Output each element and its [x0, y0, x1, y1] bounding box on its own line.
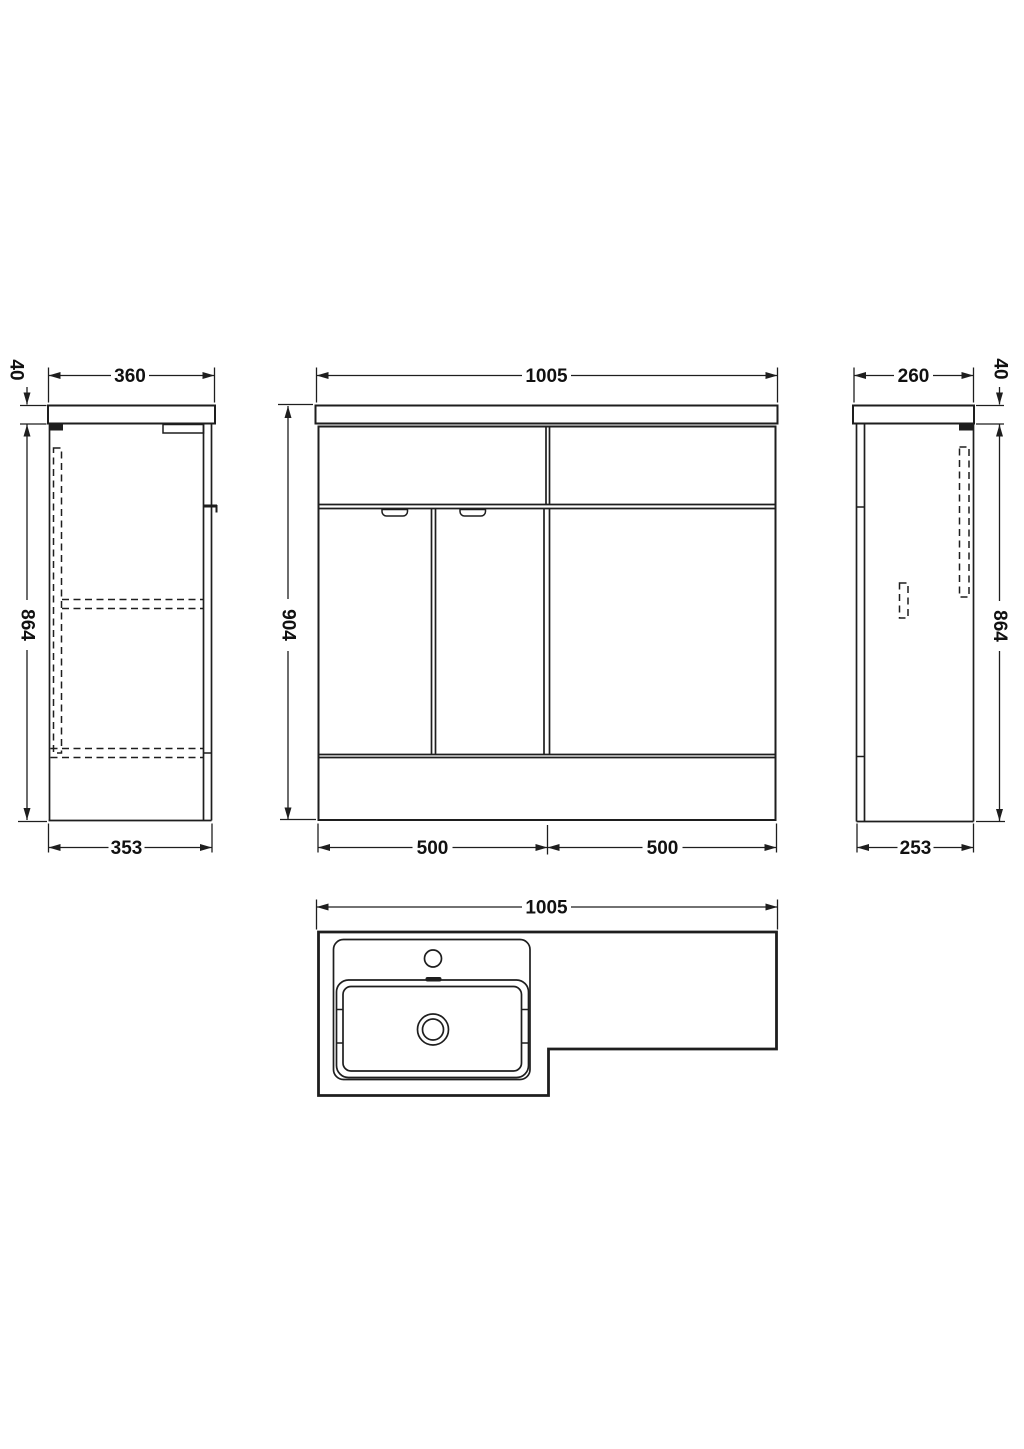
- cabinet-body: [319, 427, 776, 821]
- countertop-profile-right: [853, 406, 974, 424]
- dim-label: 40: [6, 359, 27, 380]
- dim-label: 360: [114, 366, 146, 387]
- fixing-clip: [50, 425, 63, 431]
- dim-label: 864: [989, 610, 1010, 642]
- dim-label: 253: [900, 838, 932, 859]
- technical-drawing: 360 40 864 353: [0, 0, 1024, 1449]
- plan-view: 1005: [317, 897, 778, 1096]
- countertop-profile-left: [48, 406, 215, 424]
- dim-countertop-thickness-left: 40: [6, 359, 47, 424]
- dim-label: 1005: [525, 366, 568, 387]
- hidden-fixing-block: [900, 583, 909, 618]
- dim-label: 353: [111, 838, 143, 859]
- dim-cabinet-height-left: 864: [16, 425, 47, 822]
- dim-label: 500: [647, 838, 679, 859]
- dim-label: 904: [278, 609, 299, 641]
- dim-cabinet-height-right: 864: [976, 425, 1011, 822]
- dim-label: 40: [990, 358, 1011, 379]
- dim-label: 1005: [525, 898, 568, 919]
- dim-countertop-depth-left: 360: [49, 366, 215, 403]
- drawing-canvas: 360 40 864 353: [0, 0, 1024, 1449]
- dim-countertop-thickness-right: 40: [976, 358, 1011, 424]
- front-view: 1005 904 500 500: [277, 366, 778, 860]
- dim-left-section-width: 500: [318, 824, 548, 860]
- dim-overall-width: 1005: [317, 366, 778, 403]
- dim-label: 864: [17, 609, 38, 641]
- dim-countertop-depth-right: 260: [854, 366, 974, 403]
- fixing-clip: [959, 425, 973, 431]
- top-rail-profile: [163, 425, 204, 434]
- countertop-front: [316, 406, 778, 424]
- side-view-left: 360 40 864 353: [6, 359, 218, 859]
- side-view-right: 260 40 864 253: [853, 358, 1011, 859]
- dim-plan-width: 1005: [317, 897, 778, 930]
- hidden-back-panel: [54, 448, 62, 753]
- dim-label: 260: [898, 366, 930, 387]
- hidden-hanging-rail: [960, 447, 970, 597]
- dim-overall-height: 904: [277, 405, 316, 820]
- dim-right-section-width: 500: [548, 824, 777, 860]
- dim-label: 500: [417, 838, 449, 859]
- dim-base-depth-left: 353: [49, 824, 213, 860]
- dim-base-depth-right: 253: [857, 824, 974, 860]
